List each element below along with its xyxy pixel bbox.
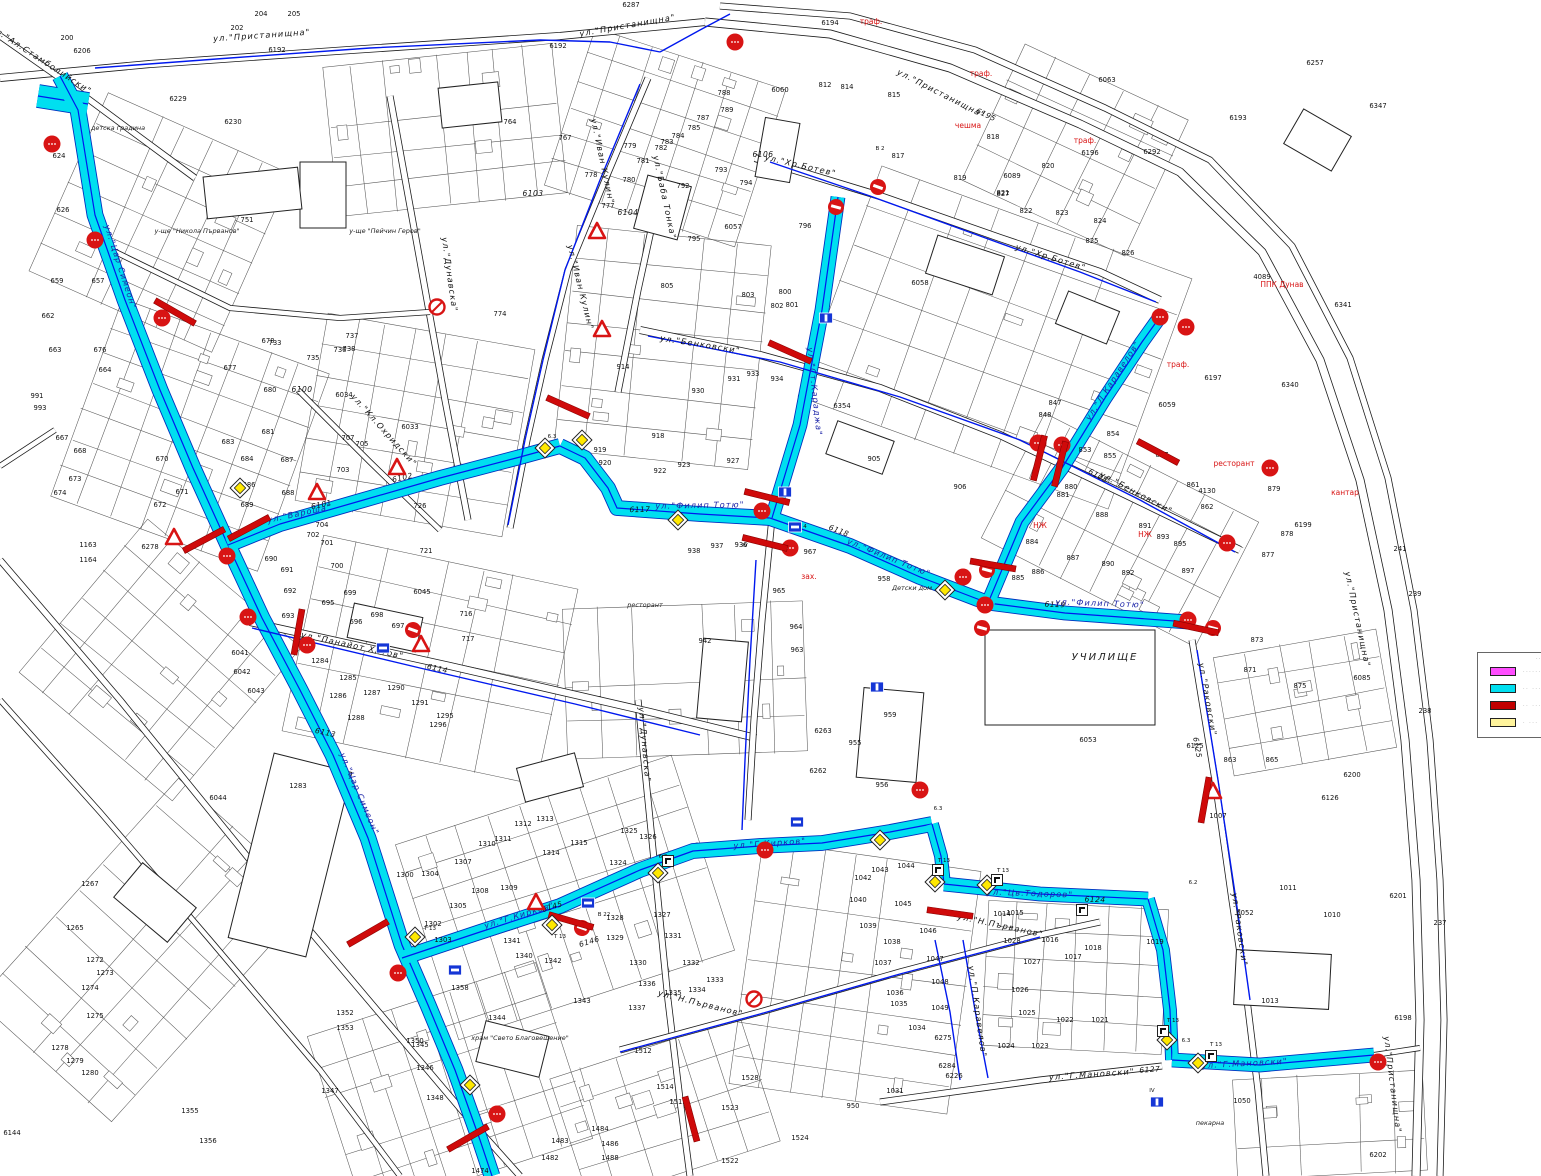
parcel-number: 6340 xyxy=(1281,381,1298,389)
parcel-number: 1304 xyxy=(421,870,438,878)
parcel-number: 1337 xyxy=(628,1004,645,1012)
parcel-number: 1279 xyxy=(66,1057,83,1065)
poi-label: УЧИЛИЩЕ xyxy=(1072,652,1139,663)
parcel-number: 626 xyxy=(57,206,70,214)
parcel-number: 1019 xyxy=(1146,938,1163,946)
parcel-number: 950 xyxy=(847,1102,860,1110)
parcel-number: 886 xyxy=(1032,568,1045,576)
parcel-number: 1311 xyxy=(494,835,511,843)
parcel-number: 695 xyxy=(322,599,335,607)
building xyxy=(476,1021,549,1077)
parcel-number: 716 xyxy=(460,610,473,618)
parcel-number: 963 xyxy=(791,646,804,654)
blue-traffic-sign xyxy=(779,487,792,497)
parcel-number: 1015 xyxy=(1006,909,1023,917)
parcel-number: 1010 xyxy=(1323,911,1340,919)
parcel-number: 848 xyxy=(1039,411,1052,419)
parcel-number: 893 xyxy=(1157,533,1170,541)
parcel-number: 1340 xyxy=(515,952,532,960)
parcel-number: 1352 xyxy=(336,1009,353,1017)
blue-traffic-sign xyxy=(820,313,833,323)
parcel-number: 792 xyxy=(677,182,690,190)
parcel-number: 818 xyxy=(987,133,1000,141)
parcel-number: 938 xyxy=(688,547,701,555)
parcel-number: 1347 xyxy=(321,1087,338,1095)
parcel-number: 1326 xyxy=(639,833,656,841)
parcel-number: 700 xyxy=(331,562,344,570)
parcel-number: 701 xyxy=(321,539,334,547)
parcel-number: 1488 xyxy=(601,1154,618,1162)
segment-number: 6103 xyxy=(522,189,543,198)
parcel-number: 1300 xyxy=(396,871,413,879)
building xyxy=(856,688,924,783)
parcel-number: 905 xyxy=(868,455,881,463)
no-stopping-sign xyxy=(747,992,762,1007)
parcel-number: 688 xyxy=(282,489,295,497)
parcel-number: 891 xyxy=(1139,522,1152,530)
parcel-number: 1288 xyxy=(347,714,364,722)
blue-traffic-sign xyxy=(789,522,802,532)
parcel-number: 1036 xyxy=(886,989,903,997)
parcel-number: 6287 xyxy=(622,1,639,9)
parcel-number: 6257 xyxy=(1306,59,1323,67)
parcel-number: 6144 xyxy=(3,1129,20,1137)
parcel-number: 918 xyxy=(652,432,665,440)
parcel-number: 1287 xyxy=(363,689,380,697)
parcel-number: 6194 xyxy=(821,19,838,27)
parcel-number: 1273 xyxy=(96,969,113,977)
parcel-number: 689 xyxy=(241,501,254,509)
parcel-number: 6045 xyxy=(413,588,430,596)
parcel-number: 1045 xyxy=(894,900,911,908)
parcel-number: 991 xyxy=(31,392,44,400)
parcel-number: 1528 xyxy=(741,1074,758,1082)
parcel-number: 767 xyxy=(559,134,572,142)
building xyxy=(985,630,1155,725)
closure-bar-marker xyxy=(742,535,788,552)
parcel-number: 1522 xyxy=(721,1157,738,1165)
parcel-number: 1049 xyxy=(931,1004,948,1012)
hydrant-marker xyxy=(489,1106,506,1123)
parcel-number: 6042 xyxy=(233,668,250,676)
building xyxy=(697,638,749,722)
parcel-number: 919 xyxy=(594,446,607,454)
route-cyan xyxy=(228,446,560,545)
sign-code-label: В 22 xyxy=(598,912,611,918)
parcel-number: 942 xyxy=(699,637,712,645)
parcel-number: 803 xyxy=(742,291,755,299)
legend-item-label: ·· ······ xyxy=(1523,703,1541,709)
street-name: ул."Цв.Тодоров" xyxy=(986,886,1074,899)
parcel-number: 1016 xyxy=(1041,936,1058,944)
parcel-number: 6200 xyxy=(1343,771,1360,779)
parcel-number: 664 xyxy=(99,366,112,374)
parcel-number: 1027 xyxy=(1023,958,1040,966)
legend-swatch-magenta xyxy=(1490,667,1516,676)
building xyxy=(300,162,346,228)
parcel-number: 6226 xyxy=(945,1072,962,1080)
parcel-number: 668 xyxy=(74,447,87,455)
street-name: ул."Раковски" xyxy=(1230,891,1250,967)
parcel-number: 922 xyxy=(654,467,667,475)
parcel-number: 6059 xyxy=(1158,401,1175,409)
parcel-number: 6041 xyxy=(231,649,248,657)
parcel-number: 802 xyxy=(771,302,784,310)
parcel-number: 737 xyxy=(346,332,359,340)
parcel-number: 897 xyxy=(1182,567,1195,575)
red-label: НЖ xyxy=(1033,521,1047,530)
blue-traffic-sign xyxy=(582,898,595,908)
parcel-number: 890 xyxy=(1102,560,1115,568)
parcel-number: 6089 xyxy=(1003,172,1020,180)
parcel-number: 1353 xyxy=(336,1024,353,1032)
parcel-number: 795 xyxy=(688,235,701,243)
building xyxy=(926,235,1005,295)
building xyxy=(826,421,894,474)
parcel-number: 1290 xyxy=(387,684,404,692)
parcel-number: 1308 xyxy=(471,887,488,895)
street-name: ул."Хр.Ботев" xyxy=(1013,241,1087,272)
parcel-number: 1305 xyxy=(449,902,466,910)
parcel-number: 1343 xyxy=(573,997,590,1005)
parcel-number: 888 xyxy=(1096,511,1109,519)
parcel-number: 6085 xyxy=(1353,674,1370,682)
parcel-number: 782 xyxy=(655,144,668,152)
sign-code-label: IV xyxy=(742,543,748,549)
sign-code-label: Т 13 xyxy=(1209,1042,1223,1048)
parcel-number: 879 xyxy=(1268,485,1281,493)
parcel-number: 6263 xyxy=(814,727,831,735)
legend-item: ········· xyxy=(1490,663,1541,680)
parcel-number: 735 xyxy=(307,354,320,362)
parcel-number: 705 xyxy=(356,440,369,448)
parcel-number: 624 xyxy=(53,152,66,160)
parcel-number: 1025 xyxy=(1018,1009,1035,1017)
parcel-block xyxy=(562,599,809,760)
parcel-number: 823 xyxy=(1056,209,1069,217)
parcel-number: 6043 xyxy=(247,687,264,695)
parcel-number: 1035 xyxy=(890,1000,907,1008)
parcel-number: 1275 xyxy=(86,1012,103,1020)
hydrant-marker xyxy=(757,842,774,859)
hydrant-marker xyxy=(299,637,316,654)
parcel-number: 6193 xyxy=(1229,114,1246,122)
legend-swatch-cyan xyxy=(1490,684,1516,693)
closure-bar-marker xyxy=(546,395,590,419)
parcel-number: 814 xyxy=(841,83,854,91)
city-plan-map: 2002022042056206623062296246267516287619… xyxy=(0,0,1541,1176)
parcel-number: 6262 xyxy=(809,767,826,775)
parcel-number: 878 xyxy=(1281,530,1294,538)
parcel-number: 667 xyxy=(56,434,69,442)
parcel-number: 1330 xyxy=(629,959,646,967)
parcel-number: 6206 xyxy=(73,47,90,55)
parcel-number: 1295 xyxy=(436,712,453,720)
parcel-number: 1283 xyxy=(289,782,306,790)
segment-number: 6124 xyxy=(1084,895,1105,905)
legend-item: ·· ······ xyxy=(1490,680,1541,697)
red-label: траф. xyxy=(860,17,883,26)
parcel-number: 1342 xyxy=(544,957,561,965)
sign-code-label: 6.2 xyxy=(1189,880,1198,886)
parcel-number: 1344 xyxy=(488,1014,505,1022)
parcel-number: 1524 xyxy=(791,1134,808,1142)
parcel-number: 1486 xyxy=(601,1140,618,1148)
hydrant-marker xyxy=(240,609,257,626)
parcel-number: 6354 xyxy=(833,402,850,410)
parcel-number: 788 xyxy=(718,89,731,97)
parcel-number: 1482 xyxy=(541,1154,558,1162)
junction-layout-sign xyxy=(1206,1051,1217,1062)
red-label: ресторант xyxy=(1213,459,1255,468)
parcel-number: 663 xyxy=(49,346,62,354)
parcel-number: 1163 xyxy=(79,541,96,549)
parcel-number: 1309 xyxy=(500,884,517,892)
parcel-number: 1044 xyxy=(897,862,914,870)
parcel-block xyxy=(17,517,303,803)
hydrant-marker xyxy=(219,548,236,565)
parcel-number: 1047 xyxy=(926,955,943,963)
parcel-number: 6053 xyxy=(1079,736,1096,744)
parcel-number: 1484 xyxy=(591,1125,608,1133)
hydrant-marker xyxy=(1152,309,1169,326)
blue-traffic-sign xyxy=(871,682,884,692)
sign-code-label: IV xyxy=(1149,1088,1155,1094)
parcel-number: 1355 xyxy=(181,1107,198,1115)
parcel-number: 854 xyxy=(1107,430,1120,438)
parcel-number: 703 xyxy=(337,466,350,474)
segment-number: 6127 xyxy=(1139,1064,1161,1074)
parcel-number: 824 xyxy=(1094,217,1107,225)
parcel-number: 1274 xyxy=(81,984,98,992)
parcel-number: 678 xyxy=(262,337,275,345)
parcel-number: 785 xyxy=(688,124,701,132)
parcel-number: 855 xyxy=(1104,452,1117,460)
parcel-number: 702 xyxy=(307,531,320,539)
parcel-number: 6033 xyxy=(401,423,418,431)
parcel-number: 738 xyxy=(343,345,356,353)
parcel-number: 930 xyxy=(692,387,705,395)
no-stopping-sign xyxy=(430,300,445,315)
parcel-number: 780 xyxy=(623,176,636,184)
parcel-number: 239 xyxy=(1409,590,1422,598)
parcel-number: 6197 xyxy=(1204,374,1221,382)
parcel-number: 717 xyxy=(462,635,475,643)
parcel-number: 1013 xyxy=(1261,997,1278,1005)
parcel-number: 881 xyxy=(1057,491,1070,499)
parcel-number: 699 xyxy=(344,589,357,597)
blue-traffic-sign xyxy=(791,817,804,827)
parcel-number: 6292 xyxy=(1143,148,1160,156)
parcel-number: 934 xyxy=(771,375,784,383)
sign-code-label: Т 13 xyxy=(1166,1018,1180,1024)
parcel-number: 920 xyxy=(599,459,612,467)
parcel-number: 6284 xyxy=(938,1062,955,1070)
parcel-number: 672 xyxy=(154,501,167,509)
parcel-number: 1021 xyxy=(1091,1016,1108,1024)
parcel-number: 1026 xyxy=(1011,986,1028,994)
parcel-block xyxy=(49,297,331,572)
parcel-number: 774 xyxy=(494,310,507,318)
parcel-number: 1356 xyxy=(199,1137,216,1145)
parcel-number: 787 xyxy=(697,114,710,122)
parcel-number: 6275 xyxy=(934,1034,951,1042)
parcel-number: 937 xyxy=(711,542,724,550)
parcel-number: 200 xyxy=(61,34,74,42)
poi-label: детска градина xyxy=(90,124,145,132)
parcel-number: 6192 xyxy=(549,42,566,50)
parcel-number: 815 xyxy=(888,91,901,99)
hydrant-marker xyxy=(44,136,61,153)
parcel-number: 993 xyxy=(34,404,47,412)
parcel-number: 681 xyxy=(262,428,275,436)
parcel-number: 1307 xyxy=(454,858,471,866)
hydrant-marker xyxy=(390,965,407,982)
sign-code-label: 6.3 xyxy=(934,806,943,812)
parcel-number: 690 xyxy=(265,555,278,563)
parcel-number: 670 xyxy=(156,455,169,463)
parcel-number: 241 xyxy=(1394,545,1407,553)
parcel-number: 1039 xyxy=(859,922,876,930)
parcel-number: 6230 xyxy=(224,118,241,126)
parcel-number: 1278 xyxy=(51,1044,68,1052)
building xyxy=(1284,109,1352,171)
building xyxy=(114,863,197,942)
parcel-number: 1024 xyxy=(997,1042,1014,1050)
parcel-number: 1336 xyxy=(638,980,655,988)
parcel-number: 1023 xyxy=(1031,1042,1048,1050)
legend-caption: ·· ···· xyxy=(1536,656,1541,663)
warning-triangle-sign xyxy=(389,459,405,474)
hydrant-marker xyxy=(154,310,171,327)
parcel-number: 4130 xyxy=(1198,487,1215,495)
parcel-number: 1512 xyxy=(634,1047,651,1055)
parcel-number: 794 xyxy=(740,179,753,187)
red-label: траф. xyxy=(1074,136,1097,145)
parcel-number: 819 xyxy=(954,174,967,182)
parcel-number: 6196 xyxy=(1081,149,1098,157)
building xyxy=(438,82,502,128)
parcel-number: 6199 xyxy=(1294,521,1311,529)
parcel-number: 6347 xyxy=(1369,102,1386,110)
parcel-number: 805 xyxy=(661,282,674,290)
closure-bar-marker xyxy=(347,919,390,947)
parcel-number: 687 xyxy=(281,456,294,464)
legend-item-label: ········· xyxy=(1523,669,1541,675)
parcel-number: 1272 xyxy=(86,956,103,964)
hydrant-marker xyxy=(87,232,104,249)
hydrant-marker xyxy=(1262,460,1279,477)
map-legend: ·· ···· ········· ·· ······ ·· ······ · … xyxy=(1477,652,1541,738)
closure-bar-marker xyxy=(1136,439,1179,466)
red-label: ППК Дунав xyxy=(1260,280,1303,289)
parcel-number: 764 xyxy=(504,118,517,126)
poi-label: пекарна xyxy=(1196,1119,1225,1127)
red-label: траф. xyxy=(1167,360,1190,369)
parcel-number: 6058 xyxy=(911,279,928,287)
parcel-number: 1474 xyxy=(471,1167,488,1175)
parcel-number: 1312 xyxy=(514,820,531,828)
parcel-number: 821 xyxy=(997,189,1010,197)
parcel-number: 684 xyxy=(241,455,254,463)
parcel-number: 793 xyxy=(715,166,728,174)
warning-triangle-sign xyxy=(528,894,544,909)
junction-layout-sign xyxy=(992,875,1003,886)
parcel-number: 1341 xyxy=(503,937,520,945)
parcel-number: 800 xyxy=(779,288,792,296)
parcel-number: 671 xyxy=(176,488,189,496)
legend-item: · ··· ··· xyxy=(1490,714,1541,731)
parcel-number: 680 xyxy=(264,386,277,394)
parcel-number: 1327 xyxy=(653,911,670,919)
building xyxy=(203,167,302,219)
parcel-number: 796 xyxy=(799,222,812,230)
parcel-number: 1042 xyxy=(854,874,871,882)
parcel-number: 964 xyxy=(790,623,803,631)
parcel-number: 1043 xyxy=(871,866,888,874)
parcel-number: 683 xyxy=(222,438,235,446)
parcel-number: 677 xyxy=(224,364,237,372)
parcel-number: 820 xyxy=(1042,162,1055,170)
parcel-number: 751 xyxy=(241,216,254,224)
parcel-number: 6201 xyxy=(1389,892,1406,900)
parcel-number: 1483 xyxy=(551,1137,568,1145)
parcel-number: 955 xyxy=(849,739,862,747)
parcel-number: 6060 xyxy=(771,86,788,94)
hydrant-marker xyxy=(1219,535,1236,552)
sign-code-label: Т 13 xyxy=(937,858,951,864)
parcel-number: 1325 xyxy=(620,827,637,835)
parcel-number: 707 xyxy=(342,434,355,442)
parcel-number: 1022 xyxy=(1056,1016,1073,1024)
parcel-number: 6057 xyxy=(724,223,741,231)
parcel-number: 6126 xyxy=(1321,794,1338,802)
road xyxy=(95,242,430,318)
poi-label: храм "Свето Благовещение" xyxy=(470,1034,569,1042)
poi-label: ресторант xyxy=(626,601,663,609)
junction-layout-sign xyxy=(1077,905,1088,916)
legend-swatch-yellow xyxy=(1490,718,1516,727)
sign-code-label: 6.3 xyxy=(1182,1038,1191,1044)
parcel-number: 906 xyxy=(954,483,967,491)
parcel-number: 691 xyxy=(281,566,294,574)
poi-label: у-ще "Никола Първанов" xyxy=(153,227,239,235)
parcel-number: 778 xyxy=(585,171,598,179)
parcel-number: 895 xyxy=(1174,540,1187,548)
parcel-number: 237 xyxy=(1434,919,1447,927)
hydrant-marker xyxy=(955,569,972,586)
parcel-number: 877 xyxy=(1262,551,1275,559)
hydrant-marker xyxy=(977,597,994,614)
street-name: ул."Пристанищна" xyxy=(212,27,311,44)
street-name: ул."Л.Каравелов" xyxy=(1083,339,1142,423)
parcel-number: 1324 xyxy=(609,859,626,867)
parcel-number: 657 xyxy=(92,277,105,285)
warning-triangle-sign xyxy=(594,321,610,336)
parcel-number: 871 xyxy=(1244,666,1257,674)
blue-traffic-sign xyxy=(1151,1097,1164,1107)
parcel-number: 698 xyxy=(371,611,384,619)
parcel-number: 6341 xyxy=(1334,301,1351,309)
hydrant-marker xyxy=(1178,319,1195,336)
sign-code-label: Т 13 xyxy=(553,934,567,940)
parcel-number: 1286 xyxy=(329,692,346,700)
parcel-number: 1332 xyxy=(682,959,699,967)
parcel-number: 726 xyxy=(414,502,427,510)
segment-number: 6100 xyxy=(291,385,312,394)
parcel-number: 931 xyxy=(728,375,741,383)
hydrant-marker xyxy=(1370,1054,1387,1071)
